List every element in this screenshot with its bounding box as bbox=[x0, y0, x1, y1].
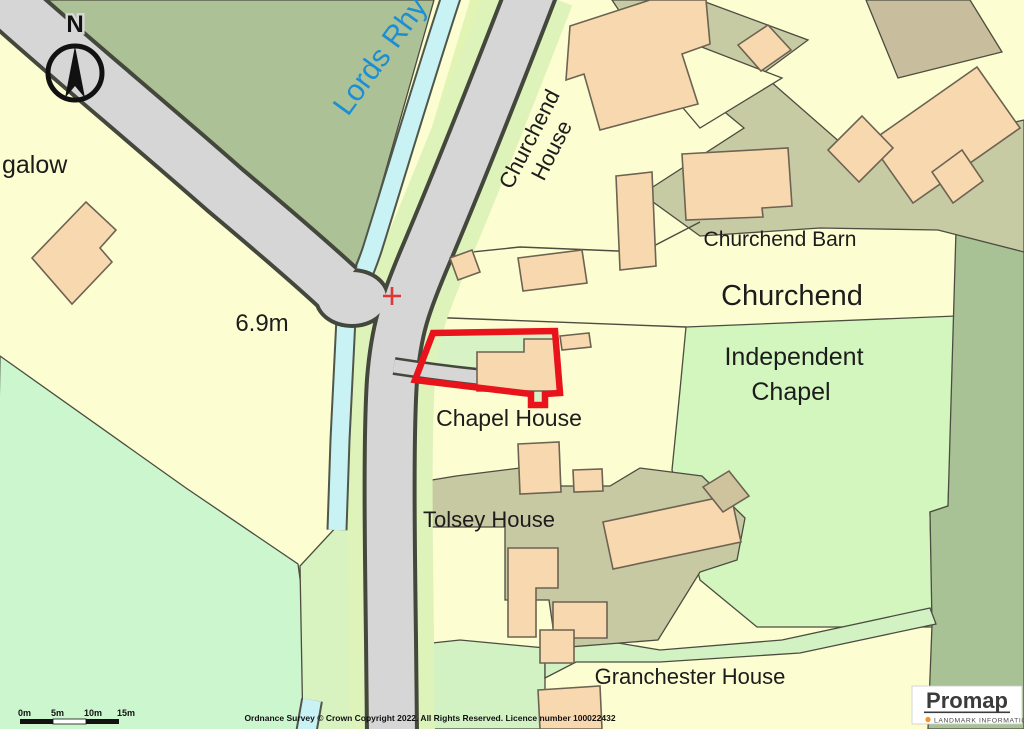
scale-label-5: 5m bbox=[51, 708, 64, 718]
promap-bullet-icon bbox=[925, 717, 930, 722]
promap-logo: Promap LANDMARK INFORMATION bbox=[912, 686, 1024, 725]
promap-tagline: LANDMARK INFORMATION bbox=[934, 718, 1024, 725]
label-independent-chapel-2: Chapel bbox=[751, 378, 830, 406]
map-canvas: galow 6.9m Lords Rhy Churchend House Chu… bbox=[0, 0, 1024, 734]
label-settlement: Churchend bbox=[721, 280, 863, 312]
scale-segment bbox=[53, 719, 86, 724]
label-spot-height: 6.9m bbox=[235, 310, 288, 337]
label-granchester-house: Granchester House bbox=[595, 664, 786, 689]
building-outbuilding bbox=[518, 250, 587, 291]
building-tolsey-small bbox=[573, 469, 603, 492]
scale-label-10: 10m bbox=[84, 708, 102, 718]
north-arrow-label: N bbox=[66, 11, 83, 38]
ordnance-survey-map: galow 6.9m Lords Rhy Churchend House Chu… bbox=[0, 0, 1024, 729]
label-bungalow: galow bbox=[2, 151, 68, 179]
promap-underline bbox=[924, 712, 1010, 714]
building-south-small bbox=[540, 630, 574, 663]
scale-segment bbox=[86, 719, 119, 724]
building-tolsey-north bbox=[518, 442, 561, 494]
building-annex bbox=[560, 333, 591, 350]
label-independent-chapel-1: Independent bbox=[724, 343, 863, 371]
scale-segment bbox=[20, 719, 53, 724]
scale-label-0: 0m bbox=[18, 708, 31, 718]
label-tolsey-house: Tolsey House bbox=[423, 507, 555, 532]
promap-wordmark: Promap bbox=[926, 688, 1008, 713]
scale-label-15: 15m bbox=[117, 708, 135, 718]
copyright-text: Ordnance Survey © Crown Copyright 2022. … bbox=[244, 713, 615, 723]
label-chapel-house: Chapel House bbox=[436, 405, 582, 431]
building-outbuilding bbox=[616, 172, 656, 270]
label-churchend-barn: Churchend Barn bbox=[704, 228, 857, 251]
